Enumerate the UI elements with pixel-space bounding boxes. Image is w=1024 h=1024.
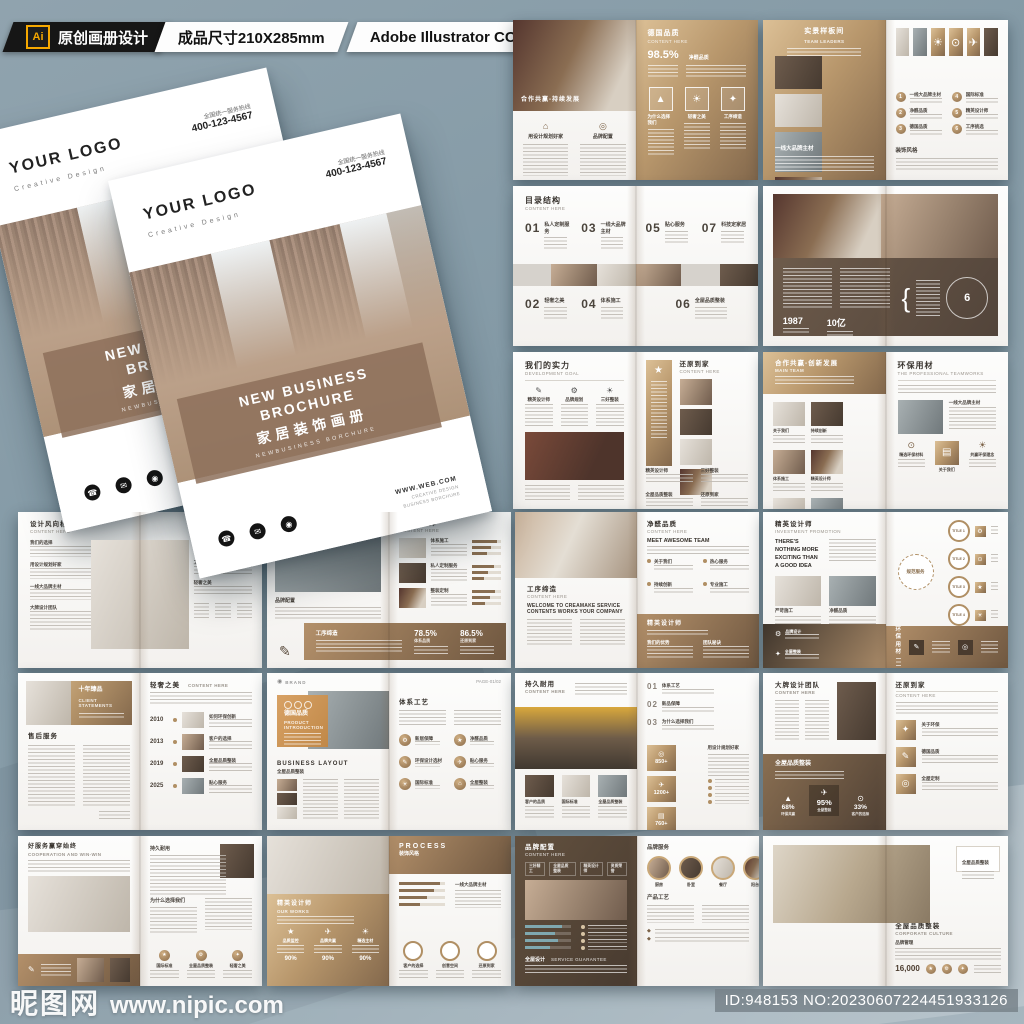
interior-photo [811, 402, 843, 426]
text-placeholder [30, 568, 93, 579]
text-placeholder [431, 594, 468, 606]
section-title: 还原到家 [896, 682, 999, 692]
diningroom-photo [525, 880, 627, 920]
image-id-tag: ID:948153 NO:20230607224451933126 [715, 989, 1018, 1012]
section-subtitle: CORPORATE CULTURE [895, 931, 1000, 936]
text-placeholder [41, 964, 71, 976]
title-circle: TITLE 1 [948, 520, 970, 542]
section-subtitle: CONTENT HERE [648, 39, 747, 44]
text-placeholder [991, 582, 999, 592]
bulb-icon [975, 610, 986, 621]
section-title: 还原到家 [680, 361, 749, 368]
text-placeholder [215, 603, 230, 619]
section-subtitle: CONTENT HERE [188, 683, 228, 688]
text-placeholder [701, 474, 748, 484]
block-title: 品牌服务 [647, 845, 749, 852]
text-placeholder [898, 385, 997, 395]
interior-photo [896, 28, 910, 56]
header-title-en: PROCESS [399, 843, 501, 851]
timeline-year: 2010 [150, 717, 168, 723]
circle-label: 卧室 [687, 882, 695, 887]
text-placeholder [588, 946, 627, 950]
bullet-dot [703, 559, 707, 563]
text-placeholder [525, 485, 570, 501]
section-subtitle: INVESTMENT PROMOTION [775, 529, 876, 534]
text-placeholder [399, 710, 446, 726]
text-placeholder [344, 779, 379, 819]
quality-panel: 全屋品质整装 68%环保共赢 95%全屋整装 33%客户的选择 [763, 754, 886, 830]
progress-bar [472, 596, 501, 599]
progress-bar [525, 925, 571, 928]
caption: 客户的品质 [525, 799, 554, 804]
phone-icon [217, 529, 236, 548]
photo-strip [681, 264, 719, 286]
star-icon [287, 928, 294, 936]
spread-cooperation-growth: 合作共赢-持续发展 用设计规划好家 品牌配置 德国品质 CONTENT HERE… [513, 20, 758, 180]
item-label: 轻奢之美 [230, 963, 246, 968]
timeline-dot [173, 762, 177, 766]
timeline-dot [173, 740, 177, 744]
text-placeholder [544, 307, 567, 321]
text-placeholder [470, 741, 495, 745]
interior-photo [811, 450, 843, 474]
spread-contents: 目录结构 CONTENT HERE 01 私人定制服务 03 一线大品牌主材 0… [513, 186, 758, 346]
pen-icon [896, 747, 916, 767]
section-title: 售后服务 [28, 733, 130, 740]
panel-subtitle: OUR WORKS [277, 909, 379, 914]
home-icon [454, 778, 466, 790]
header-title-cn: 装饰风格 [399, 851, 501, 858]
section-title: 工序缔造 [527, 586, 625, 593]
section-subtitle: CONTENT HERE [525, 689, 565, 694]
column-title: 三好整装 [601, 397, 619, 403]
progress-bar [525, 946, 571, 949]
text-placeholder [588, 939, 627, 943]
interior-photo [680, 439, 713, 465]
interior-photo [598, 775, 627, 797]
stat-value: 90% [285, 956, 297, 962]
text-placeholder [523, 144, 568, 176]
progress-bar [399, 882, 445, 885]
text-placeholder [601, 237, 624, 251]
timeline-dot [173, 718, 177, 722]
text-placeholder [922, 728, 999, 738]
text-placeholder [588, 932, 627, 936]
text-placeholder [974, 965, 1001, 973]
text-placeholder [415, 785, 440, 789]
text-placeholder [237, 603, 252, 619]
stat-value: 850+ [655, 759, 667, 765]
text-placeholder [922, 782, 999, 792]
bulb-icon [685, 87, 709, 111]
timeline-year: 2013 [150, 739, 168, 745]
star-icon [454, 734, 466, 746]
spread-durability: 持久耐用CONTENT HERE 客户的品质 国际标准 全屋品质整装 01体系工… [515, 673, 759, 830]
text-placeholder [647, 546, 749, 554]
interior-photo [525, 775, 554, 797]
stat-label: 还原到家 [460, 638, 494, 643]
text-placeholder [662, 707, 714, 714]
caption: 精英设计师 [811, 476, 843, 481]
circle-label: 餐厅 [719, 882, 727, 887]
interior-photo [913, 28, 927, 56]
list-number: 5 [952, 108, 962, 118]
caption: 净醛品质 [829, 608, 875, 614]
section-title: 实景样板间 [804, 28, 844, 36]
feature-label: 工序缔造 [724, 114, 742, 120]
section-title: 我们的实力 [525, 361, 624, 370]
text-placeholder [785, 654, 819, 659]
interior-photo [562, 775, 591, 797]
bullet-dot [581, 946, 585, 950]
text-placeholder [922, 755, 999, 765]
stat-year: 1987 [783, 316, 809, 326]
gear-icon [399, 734, 411, 746]
chat-icon [775, 651, 781, 658]
text-placeholder [811, 483, 843, 492]
timeline-year: 2025 [150, 783, 168, 789]
feature-label: 为什么选择我们 [648, 114, 674, 126]
bullet-dot [703, 582, 707, 586]
section-subtitle: THE PROFESSIONAL TEAMWORKS [898, 371, 997, 380]
sub-heading: 品牌管理 [895, 940, 1000, 946]
stat-tile: 850+ [647, 745, 676, 771]
circle-label: 厨房 [655, 882, 663, 887]
dark-band: 品牌设计 全屋整装 全屋设计 私人定制服务 [763, 624, 886, 668]
network-icon [649, 87, 673, 111]
plane-icon [454, 756, 466, 768]
spread-elite-designer: 精英设计师 INVESTMENT PROMOTION THERE'S NOTHI… [763, 512, 1008, 668]
donut-label: 创意空间 [442, 963, 458, 968]
text-placeholder [916, 280, 940, 316]
watermark-url: www.nipic.com [110, 992, 284, 1020]
text-placeholder [30, 589, 93, 600]
text-placeholder [805, 700, 829, 740]
text-placeholder [715, 779, 749, 783]
interior-photo [773, 402, 805, 426]
toc-label: 体系施工 [601, 298, 628, 305]
progress-bar [472, 552, 501, 555]
text-placeholder [525, 965, 627, 973]
banner-title: 十年臻品 [79, 687, 124, 695]
stat-amount: 10亿 [827, 316, 853, 329]
progress-bar [472, 590, 501, 593]
text-placeholder [840, 268, 889, 308]
text-placeholder [654, 588, 693, 595]
progress-bar [472, 565, 501, 568]
spread-process-quality: 工序缔造 CONTENT HERE WELCOME TO CREAMAKE SE… [515, 512, 759, 668]
panel-title: 精英设计师 [647, 621, 749, 628]
text-placeholder [284, 733, 321, 745]
text-placeholder [455, 890, 501, 908]
interior-photo [898, 400, 943, 434]
tab-label: 全屋品质整装 [549, 862, 575, 876]
bullet-dot [581, 925, 585, 929]
text-placeholder [205, 898, 252, 930]
bullet-dot [581, 932, 585, 936]
progress-bar [472, 571, 501, 574]
text-placeholder [601, 307, 624, 321]
gear-icon [942, 964, 952, 974]
spread-our-strength: 我们的实力 DEVELOPMENT GOAL 精英设计师 品牌规划 三好整装 还… [513, 352, 758, 509]
section-title: 好服务赢穿始终 [28, 844, 130, 851]
signature-placeholder [99, 811, 130, 819]
bullet-dot [647, 559, 651, 563]
text-placeholder [277, 945, 304, 954]
text-placeholder [655, 929, 749, 934]
bulb-icon [931, 28, 945, 56]
column-title: 品牌配置 [593, 134, 613, 141]
watermark-site-name: 昵图网 [10, 982, 100, 1022]
chat-icon [721, 87, 745, 111]
band-title: 工序缔造 [316, 631, 403, 638]
caption: 体系施工 [773, 476, 805, 481]
circle-label: 阳台 [751, 882, 759, 887]
bulb-icon [606, 387, 613, 395]
kitchen-photo: 合作共赢-持续发展 [513, 20, 636, 111]
thumb-photo [277, 793, 297, 805]
brand-name: BRAND [285, 680, 306, 685]
stat-value: 1200+ [654, 790, 669, 796]
search-icon [857, 795, 864, 803]
gear-icon [196, 950, 207, 961]
interior-photo [636, 264, 682, 286]
bullet-dot [708, 800, 712, 804]
star-icon [159, 950, 170, 961]
spread-design-team: 大牌设计团队CONTENT HERE 全屋品质整装 68%环保共赢 95%全屋整… [763, 673, 1008, 830]
toc-number: 06 [676, 298, 691, 321]
section-title: 持久耐用 [525, 681, 565, 688]
diagram-center-number: 6 [964, 292, 970, 304]
block-title: 用设计规划好家 [708, 745, 749, 751]
timeline-photo [182, 734, 204, 750]
text-placeholder [150, 970, 179, 978]
pen-icon [535, 387, 542, 395]
column-title: 品牌规划 [565, 397, 583, 403]
text-placeholder [79, 713, 124, 719]
stat-value: 33% [854, 804, 867, 811]
panel-title: 精英设计师 [277, 901, 379, 908]
gear-icon [975, 526, 986, 537]
text-placeholder [775, 156, 874, 172]
text-placeholder [647, 630, 708, 637]
stat-label: 客户的选择 [852, 812, 870, 817]
text-placeholder [314, 945, 341, 954]
pen-icon [399, 756, 411, 768]
text-placeholder [775, 700, 799, 740]
trophy-icon [654, 366, 663, 376]
text-placeholder [209, 741, 252, 749]
room-photo-circle [743, 856, 759, 880]
brown-info-panel: 1987 10亿 { 6 [773, 258, 998, 336]
text-placeholder [194, 603, 209, 619]
text-placeholder [646, 474, 693, 484]
bottom-heading: 装饰风格 [896, 148, 999, 155]
text-placeholder [578, 485, 623, 501]
title-circle: TITLE 4 [948, 604, 970, 626]
text-placeholder [775, 376, 854, 384]
spread-corporate-culture: 全屋品质整装 全屋品质整装 CORPORATE CULTURE 品牌管理 16,… [763, 836, 1008, 986]
spread-brand-config: 品牌配置 CONTENT HERE 三好精工 全屋品质整装 精英设计师 资质荣誉 [515, 836, 759, 986]
hallway-photo [91, 540, 189, 649]
list-number: 3 [896, 124, 906, 134]
text-placeholder [829, 539, 875, 561]
text-placeholder [665, 231, 688, 245]
timeline-photo [182, 778, 204, 794]
text-placeholder [648, 65, 678, 79]
caption: 一线大品牌主材 [455, 882, 501, 888]
process-header: PROCESS 装饰风格 [389, 836, 511, 874]
header-title: 原创画册设计 [58, 27, 148, 48]
section-title: 净醛品质 [647, 521, 749, 528]
text-placeholder [30, 611, 93, 631]
pen-icon [279, 644, 291, 658]
text-placeholder [83, 745, 130, 807]
text-placeholder [962, 871, 994, 879]
list-number: 1 [896, 92, 906, 102]
interior-photo [773, 450, 805, 474]
stat-tile: 1200+ [647, 776, 676, 802]
interior-photo [551, 264, 597, 286]
toc-label: 贴心服务 [665, 222, 692, 229]
text-placeholder [436, 970, 465, 978]
bullet-dot [581, 939, 585, 943]
step-number: 03 [647, 719, 658, 732]
section-subtitle: CONTENT HERE [680, 369, 749, 374]
thumb-photo [77, 958, 104, 982]
star-icon [926, 964, 936, 974]
globe-icon [279, 515, 298, 534]
toc-number: 03 [581, 222, 596, 251]
stat-value: 98.5% [648, 49, 679, 61]
text-placeholder [932, 641, 949, 653]
search-icon [975, 554, 986, 565]
diamond-icon [647, 937, 651, 942]
office-photo [267, 836, 389, 894]
progress-bar [399, 889, 445, 892]
tab-label: 三好精工 [525, 862, 545, 876]
text-placeholder [981, 641, 998, 653]
deco-circle [304, 701, 312, 709]
interior-photo [720, 264, 758, 286]
feature-label: 关于我们 [939, 467, 955, 472]
section-subtitle: CONTENT HERE [525, 206, 565, 211]
text-placeholder [209, 785, 252, 793]
interior-photo [680, 379, 713, 405]
interior-photo [984, 28, 998, 56]
bulb-icon [978, 441, 986, 450]
section-title: 目录结构 [525, 196, 565, 205]
donut-label: 客户的选择 [403, 963, 423, 968]
text-placeholder [460, 646, 494, 654]
section-subtitle: CONTENT HERE [525, 852, 627, 857]
text-placeholder [527, 619, 572, 645]
bathroom-photo [515, 707, 637, 769]
globe-icon [145, 469, 164, 488]
section-subtitle: CONTENT HERE [647, 529, 749, 534]
diagram-center-label: 规范服务 [907, 569, 925, 575]
list-number: 4 [952, 92, 962, 102]
section-subtitle: CONTENT HERE [775, 690, 829, 695]
text-placeholder [710, 565, 749, 572]
stat-label: 全屋整装 [817, 808, 831, 813]
chat-icon [958, 964, 968, 974]
box-title: 德国品质 [284, 711, 321, 719]
title-circle: TITLE 2 [948, 548, 970, 570]
target-icon [599, 122, 607, 131]
title-circle: TITLE 3 [948, 576, 970, 598]
slogan: THERE'S NOTHING MORE EXCITING THAN A GOO… [775, 539, 821, 571]
column-label: 精选主材 [357, 938, 373, 943]
text-placeholder [316, 640, 403, 652]
text-placeholder [209, 719, 252, 727]
room-photo-circle [679, 856, 703, 880]
text-placeholder [991, 526, 999, 536]
trophy-sidebar [646, 360, 672, 466]
diagram-center-circle: 规范服务 [898, 554, 934, 590]
timeline-dot [173, 784, 177, 788]
text-placeholder [783, 268, 832, 308]
text-placeholder [150, 692, 252, 706]
search-icon [949, 28, 963, 56]
text-placeholder [454, 710, 501, 726]
text-placeholder [969, 459, 997, 468]
interior-photo [811, 498, 843, 509]
text-placeholder [895, 948, 1000, 960]
photo-strip [513, 264, 551, 286]
home-icon [543, 122, 548, 131]
office-photo [26, 681, 71, 725]
thumb-photo [277, 779, 297, 791]
text-placeholder [785, 634, 819, 639]
progress-bar [472, 602, 501, 605]
donut-label: 还原到家 [479, 963, 495, 968]
kitchen-panorama-photo [773, 845, 930, 923]
text-placeholder [470, 763, 495, 767]
text-placeholder [414, 646, 448, 654]
list-number: 2 [896, 108, 906, 118]
diamond-icon [647, 929, 651, 934]
caption: 国际标准 [562, 799, 591, 804]
item-label: 全屋品质整装 [189, 963, 213, 968]
text-placeholder [28, 860, 130, 872]
stats-band: 工序缔造 78.5%体系品质 86.5%还原到家 [304, 623, 507, 660]
progress-bar [525, 932, 571, 935]
phone-icon [83, 483, 102, 502]
text-placeholder [150, 855, 226, 895]
star-icon [975, 582, 986, 593]
panel-title: 全屋品质整装 [775, 761, 874, 769]
text-placeholder [431, 544, 468, 556]
header-ribbon-title: Ai 原创画册设计 [3, 22, 172, 52]
interior-photo [775, 94, 822, 127]
text-placeholder [827, 331, 853, 336]
spread-company-history: 1987 10亿 { 6 [763, 186, 1008, 346]
stat-label: 净醛品质 [689, 55, 709, 62]
spread-after-sales: 十年臻品 CLIENT STATEMENTS 售后服务 轻奢之美 CONTENT… [18, 673, 262, 830]
text-placeholder [596, 404, 624, 426]
text-placeholder [701, 498, 748, 508]
text-placeholder [647, 646, 693, 658]
text-placeholder [470, 785, 495, 789]
section-title: 体系工艺 [399, 699, 501, 706]
search-icon [907, 441, 915, 450]
item-label: 国际标准 [156, 963, 172, 968]
page-number: PAGE-01/02 [476, 679, 501, 684]
text-placeholder [655, 937, 749, 942]
title-text: TITLE 4 [952, 613, 965, 617]
header-size-label: 成品尺寸210X285mm [178, 27, 325, 48]
